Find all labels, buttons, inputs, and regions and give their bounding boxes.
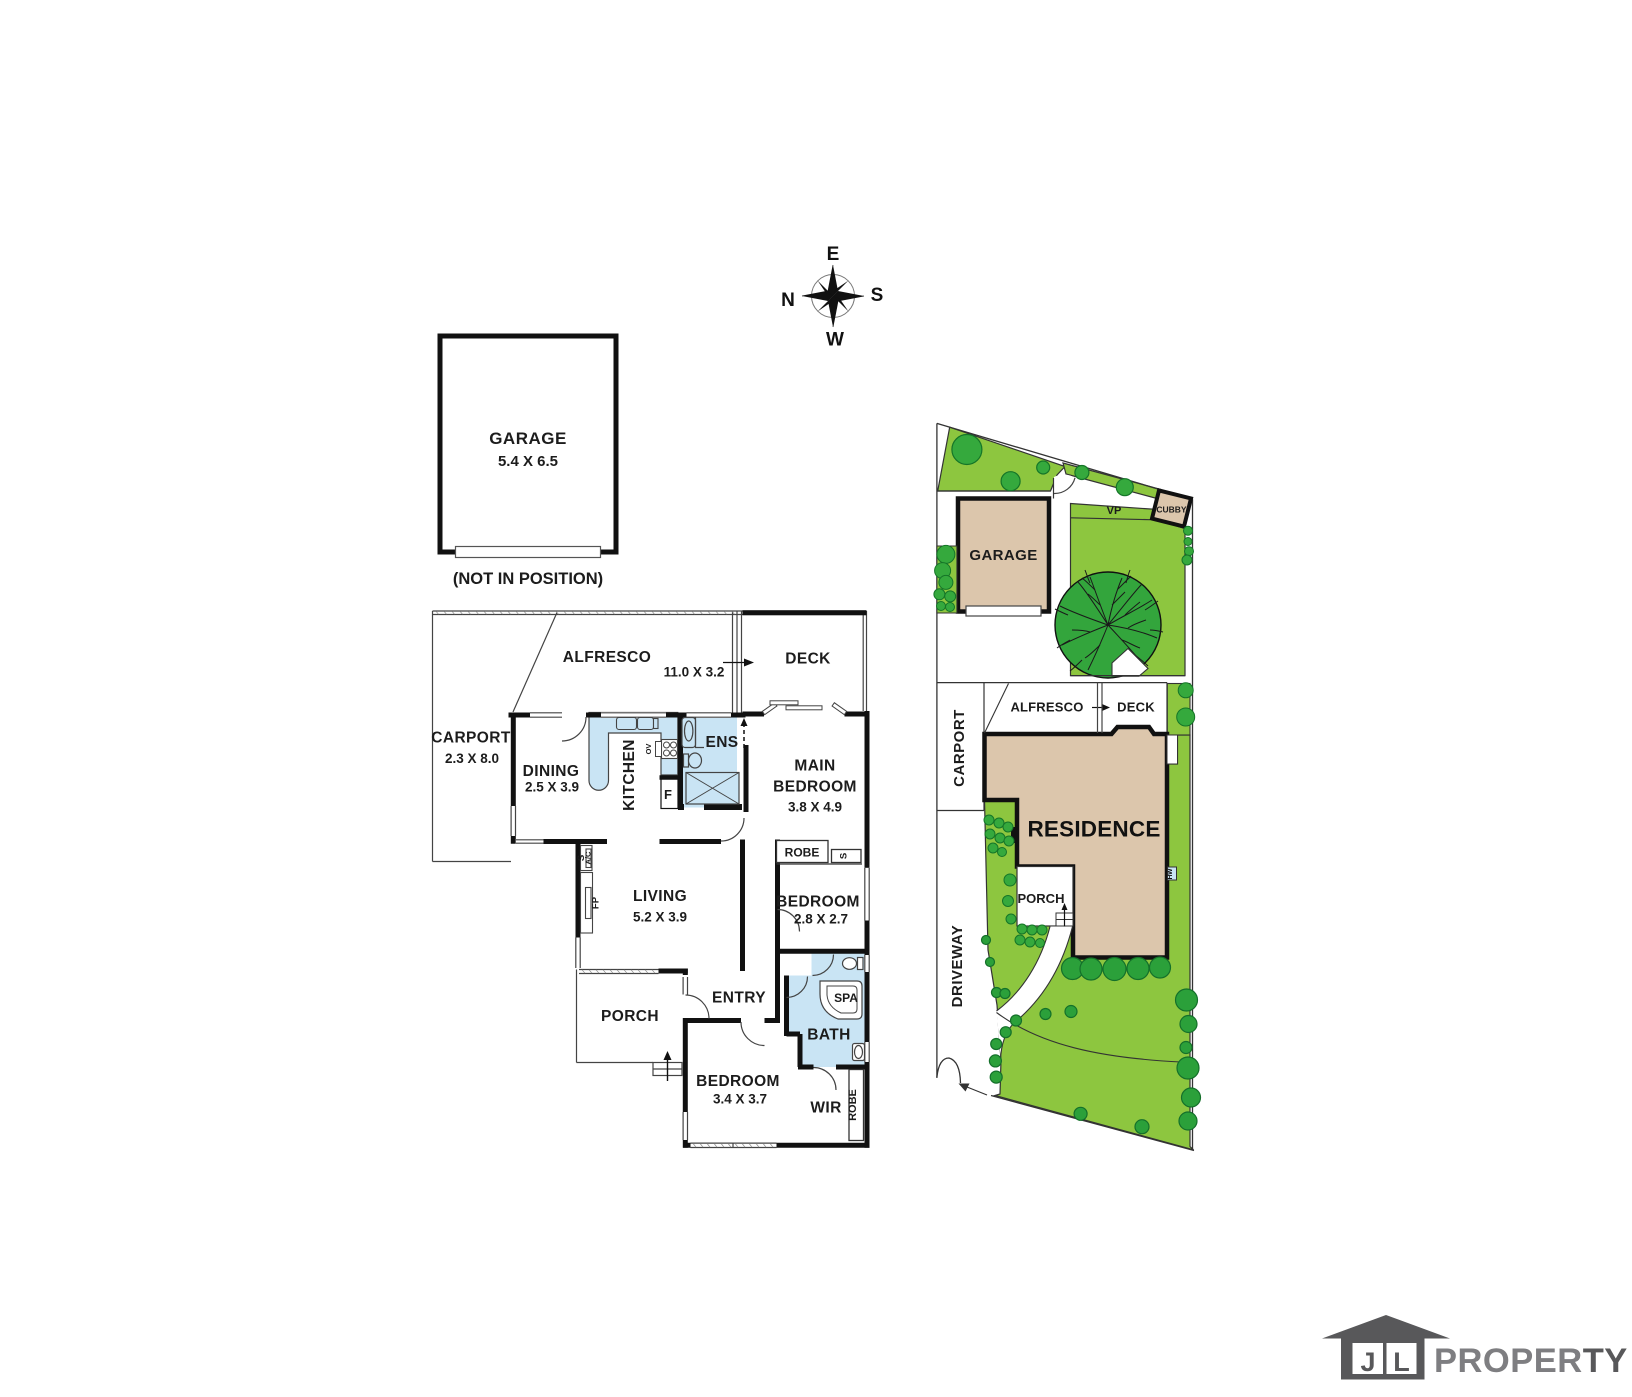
- svg-text:DECK: DECK: [1117, 700, 1155, 715]
- svg-text:S: S: [839, 853, 850, 859]
- svg-text:ROBE: ROBE: [847, 1089, 859, 1121]
- svg-text:(NOT IN POSITION): (NOT IN POSITION): [453, 570, 603, 588]
- svg-text:5.4 X 6.5: 5.4 X 6.5: [498, 453, 558, 470]
- svg-text:J: J: [1360, 1347, 1375, 1377]
- svg-text:5.2 X 3.9: 5.2 X 3.9: [633, 910, 687, 925]
- svg-text:ROBE: ROBE: [785, 846, 820, 860]
- svg-text:2.3 X 8.0: 2.3 X 8.0: [445, 751, 499, 766]
- svg-text:WIR: WIR: [810, 1100, 841, 1117]
- svg-text:MAIN: MAIN: [794, 758, 835, 775]
- svg-text:A/C: A/C: [584, 851, 593, 865]
- svg-text:ALFRESCO: ALFRESCO: [563, 649, 651, 666]
- svg-text:3.8 X 4.9: 3.8 X 4.9: [788, 800, 842, 815]
- svg-text:GARAGE: GARAGE: [489, 429, 567, 448]
- svg-text:PORCH: PORCH: [601, 1008, 659, 1025]
- svg-text:2.8 X 2.7: 2.8 X 2.7: [794, 912, 848, 927]
- svg-text:2.5 X 3.9: 2.5 X 3.9: [525, 780, 579, 795]
- svg-text:CUBBY: CUBBY: [1156, 505, 1187, 515]
- svg-text:L: L: [1393, 1347, 1410, 1377]
- svg-text:PORCH: PORCH: [1018, 891, 1065, 906]
- svg-text:GARAGE: GARAGE: [969, 547, 1037, 564]
- svg-text:DRIVEWAY: DRIVEWAY: [949, 925, 966, 1008]
- svg-text:LIVING: LIVING: [633, 888, 687, 905]
- svg-text:DECK: DECK: [785, 651, 831, 668]
- svg-text:BATH: BATH: [807, 1027, 851, 1044]
- svg-text:PROPERTY: PROPERTY: [1434, 1342, 1628, 1380]
- svg-text:11.0 X 3.2: 11.0 X 3.2: [664, 665, 725, 680]
- svg-text:ENTRY: ENTRY: [712, 990, 766, 1007]
- svg-text:FP: FP: [591, 896, 602, 909]
- svg-text:RESIDENCE: RESIDENCE: [1027, 817, 1160, 842]
- svg-text:KITCHEN: KITCHEN: [621, 739, 638, 811]
- svg-text:E: E: [827, 244, 840, 265]
- svg-text:OV: OV: [644, 744, 653, 755]
- svg-text:SPA: SPA: [834, 991, 858, 1005]
- svg-text:HW: HW: [1167, 868, 1174, 880]
- svg-text:BEDROOM: BEDROOM: [776, 894, 860, 911]
- svg-text:CARPORT: CARPORT: [951, 709, 968, 787]
- svg-text:ENS: ENS: [705, 734, 738, 751]
- svg-text:F: F: [664, 787, 672, 802]
- svg-text:N: N: [781, 290, 795, 311]
- svg-text:3.4 X 3.7: 3.4 X 3.7: [713, 1092, 767, 1107]
- svg-text:BEDROOM: BEDROOM: [773, 779, 857, 796]
- svg-text:CARPORT: CARPORT: [431, 730, 511, 747]
- svg-text:BEDROOM: BEDROOM: [696, 1073, 780, 1090]
- svg-text:S: S: [871, 285, 884, 306]
- svg-text:W: W: [826, 330, 844, 351]
- svg-text:ALFRESCO: ALFRESCO: [1010, 700, 1083, 715]
- svg-text:DINING: DINING: [523, 763, 580, 780]
- svg-text:VP: VP: [1107, 505, 1122, 517]
